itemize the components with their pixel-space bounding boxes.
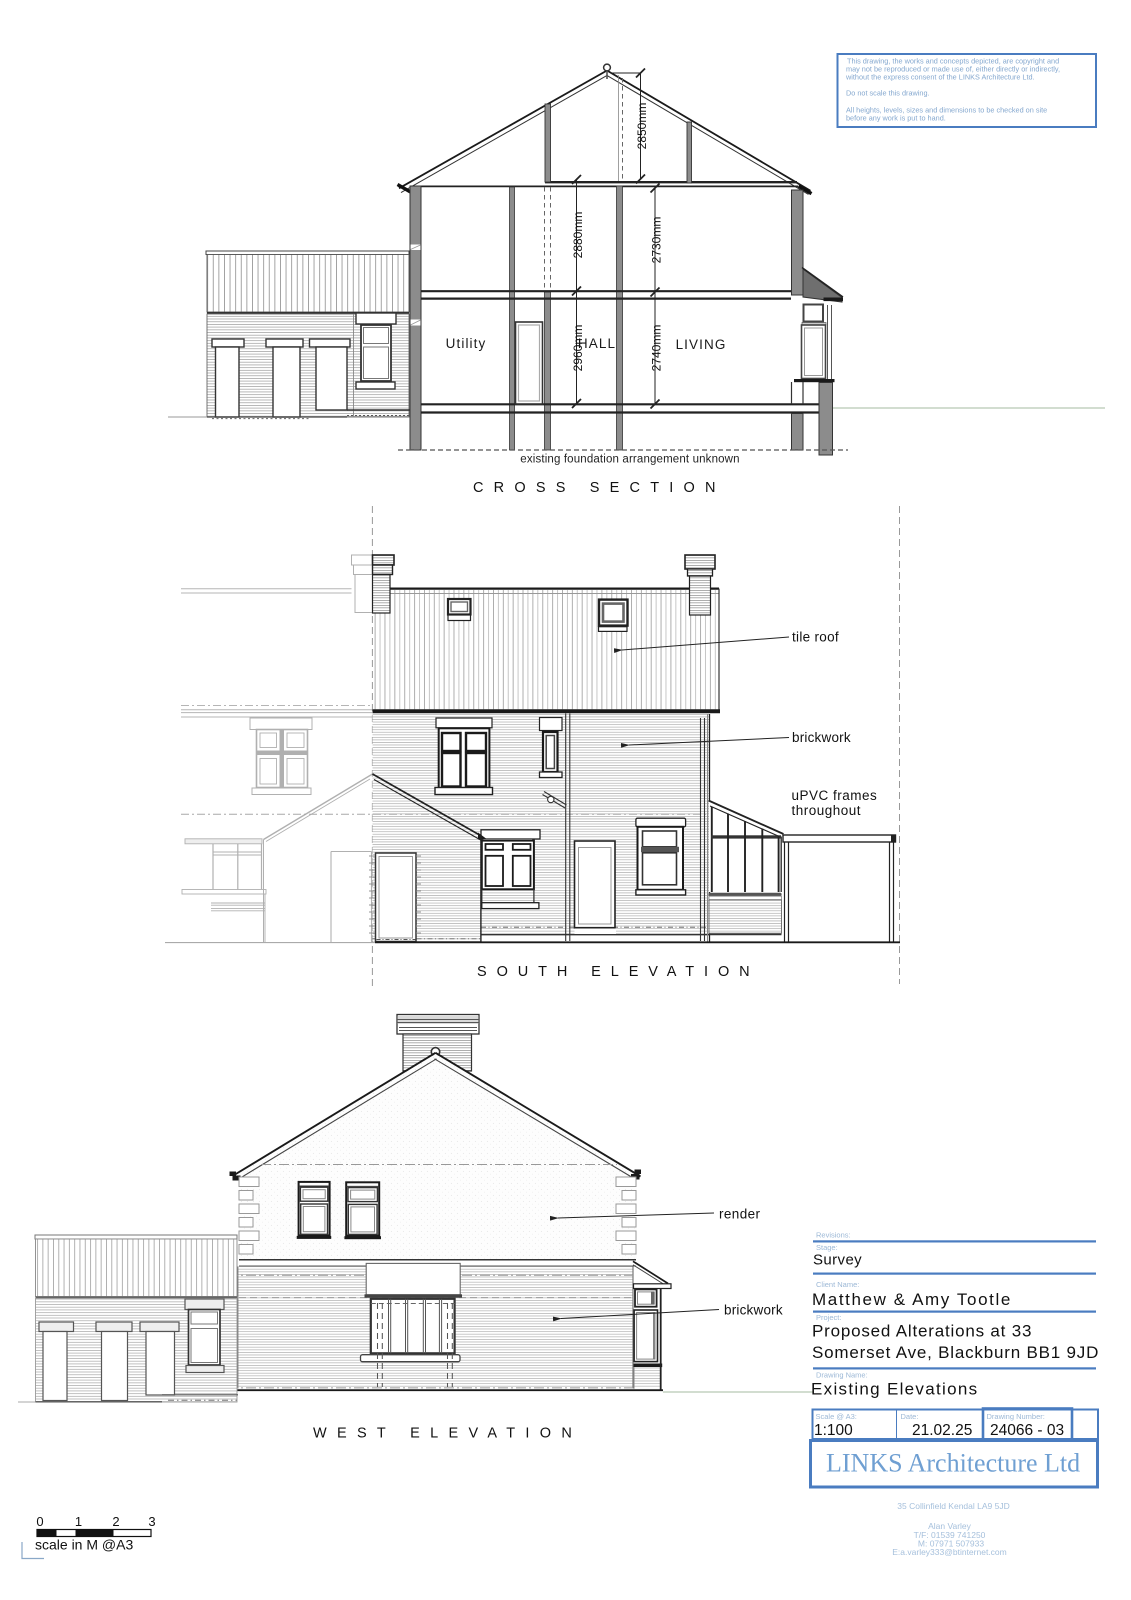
svg-text:Drawing Name:: Drawing Name:	[816, 1371, 868, 1380]
svg-text:Utility: Utility	[446, 336, 487, 351]
svg-text:Matthew & Amy Tootle: Matthew & Amy Tootle	[812, 1290, 1012, 1309]
svg-text:3: 3	[148, 1514, 155, 1529]
svg-text:SOUTH ELEVATION: SOUTH ELEVATION	[477, 964, 760, 980]
svg-text:2960mm: 2960mm	[571, 325, 585, 372]
svg-text:scale in M @A3: scale in M @A3	[35, 1537, 133, 1553]
svg-text:E:a.varley333@btinternet.com: E:a.varley333@btinternet.com	[892, 1547, 1006, 1557]
svg-text:2850mm: 2850mm	[635, 103, 649, 150]
svg-text:uPVC frames: uPVC frames	[792, 788, 878, 803]
svg-text:Revisions:: Revisions:	[816, 1231, 851, 1240]
svg-text:0: 0	[36, 1514, 43, 1529]
svg-text:2: 2	[112, 1514, 119, 1529]
svg-text:existing foundation arrangemen: existing foundation arrangement unknown	[520, 454, 739, 466]
svg-text:Scale @ A3:: Scale @ A3:	[816, 1412, 857, 1421]
svg-text:Date:: Date:	[901, 1412, 919, 1421]
svg-text:before any work is put to hand: before any work is put to hand.	[846, 114, 946, 123]
svg-text:render: render	[719, 1207, 761, 1222]
svg-text:Existing Elevations: Existing Elevations	[811, 1380, 978, 1399]
svg-text:Somerset Ave, Blackburn BB1 9J: Somerset Ave, Blackburn BB1 9JD	[812, 1343, 1099, 1362]
svg-text:21.02.25: 21.02.25	[912, 1422, 972, 1439]
svg-text:Proposed Alterations at 33: Proposed Alterations at 33	[812, 1322, 1032, 1341]
svg-text:1:100: 1:100	[814, 1422, 853, 1439]
svg-text:brickwork: brickwork	[792, 730, 851, 745]
svg-text:throughout: throughout	[792, 803, 862, 818]
svg-text:Client Name:: Client Name:	[816, 1280, 859, 1289]
svg-text:without the express consent of: without the express consent of the LINKS…	[845, 73, 1035, 82]
svg-text:Survey: Survey	[813, 1252, 862, 1269]
svg-text:Drawing Number:: Drawing Number:	[987, 1412, 1045, 1421]
svg-text:1: 1	[75, 1514, 82, 1529]
svg-text:tile roof: tile roof	[792, 630, 839, 645]
svg-text:CROSS SECTION: CROSS SECTION	[473, 480, 726, 496]
svg-text:LIVING: LIVING	[676, 337, 727, 352]
svg-text:24066 - 03: 24066 - 03	[990, 1422, 1064, 1439]
svg-text:WEST ELEVATION: WEST ELEVATION	[313, 1426, 582, 1442]
svg-text:2730mm: 2730mm	[650, 217, 664, 264]
svg-text:Do not scale this drawing.: Do not scale this drawing.	[846, 89, 930, 98]
svg-text:brickwork: brickwork	[724, 1303, 783, 1318]
svg-text:LINKS Architecture Ltd: LINKS Architecture Ltd	[826, 1449, 1080, 1478]
svg-text:2880mm: 2880mm	[571, 212, 585, 259]
svg-text:35 Collinfield Kendal LA9 5JD: 35 Collinfield Kendal LA9 5JD	[897, 1501, 1009, 1511]
svg-text:2740mm: 2740mm	[650, 325, 664, 372]
